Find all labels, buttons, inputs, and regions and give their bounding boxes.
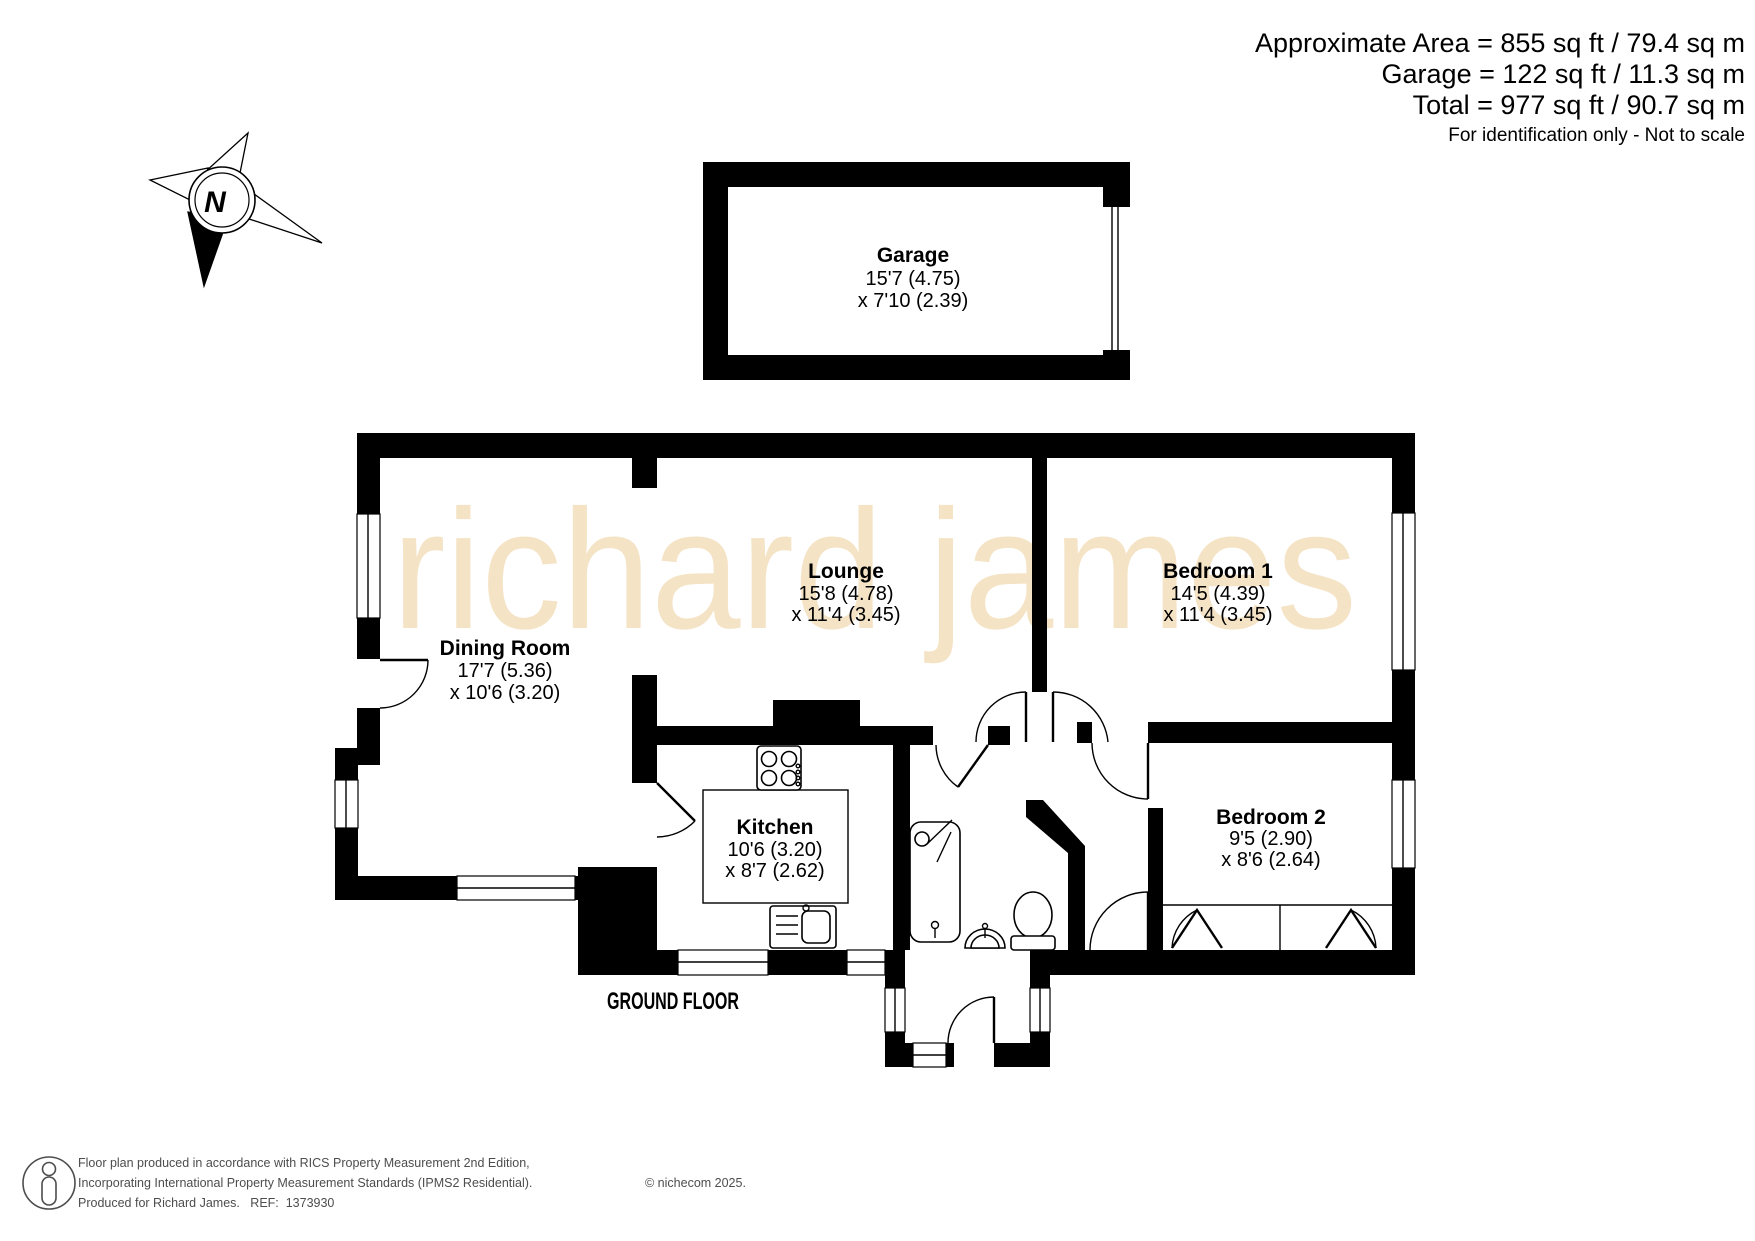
lounge-dim1: 15'8 (4.78) [799, 583, 894, 605]
garage-area-line: Garage = 122 sq ft / 11.3 sq m [1382, 59, 1745, 89]
footer-line2: Incorporating International Property Mea… [78, 1176, 532, 1190]
floorplan-drawing: richard james Approximate Area = 855 sq … [0, 0, 1755, 1241]
toilet-icon [1011, 892, 1055, 950]
footer-line3: Produced for Richard James. REF: 1373930 [78, 1196, 334, 1210]
bath-icon [910, 820, 960, 942]
kitchen-door [657, 783, 695, 821]
footer-copyright: © nichecom 2025. [645, 1176, 746, 1190]
bedroom2-wardrobes [1163, 905, 1392, 950]
footer-line1: Floor plan produced in accordance with R… [78, 1156, 530, 1170]
room-label-bedroom1: Bedroom 1 14'5 (4.39) x 11'4 (3.45) [1163, 560, 1273, 626]
kitchen-dim2: x 8'7 (2.62) [725, 860, 824, 882]
disclaimer-line: For identification only - Not to scale [1448, 125, 1745, 146]
bedroom2-dim2: x 8'6 (2.64) [1221, 849, 1320, 871]
room-label-kitchen: Kitchen 10'6 (3.20) x 8'7 (2.62) [725, 816, 824, 882]
garage-dim1: 15'7 (4.75) [866, 268, 961, 290]
wardrobe-bifold-left [1172, 910, 1222, 948]
lounge-name: Lounge [808, 560, 884, 583]
bathroom-fixtures [910, 820, 1055, 950]
bedroom1-dim1: 14'5 (4.39) [1171, 583, 1266, 605]
basin-icon [965, 924, 1005, 949]
floor-title: GROUND FLOOR [607, 988, 739, 1015]
area-summary: Approximate Area = 855 sq ft / 79.4 sq m… [1255, 28, 1745, 146]
footer: Floor plan produced in accordance with R… [23, 1156, 746, 1210]
bathroom-door [958, 745, 988, 787]
room-label-garage: Garage 15'7 (4.75) x 7'10 (2.39) [858, 244, 969, 312]
approximate-area-line: Approximate Area = 855 sq ft / 79.4 sq m [1255, 28, 1745, 58]
wardrobe-bifold-right [1326, 910, 1376, 948]
room-label-dining: Dining Room 17'7 (5.36) x 10'6 (3.20) [440, 637, 571, 704]
lounge-dim2: x 11'4 (3.45) [791, 604, 900, 626]
dining-name: Dining Room [440, 637, 571, 660]
kitchen-name: Kitchen [736, 816, 813, 839]
porch-structure [885, 950, 1050, 1067]
stove-icon [757, 746, 801, 790]
room-label-bedroom2: Bedroom 2 9'5 (2.90) x 8'6 (2.64) [1216, 806, 1326, 871]
garage-name: Garage [877, 244, 949, 267]
floorplan-page: richard james Approximate Area = 855 sq … [0, 0, 1755, 1241]
rics-person-icon [23, 1157, 75, 1209]
bedroom1-name: Bedroom 1 [1163, 560, 1273, 583]
kitchen-sink-icon [770, 905, 836, 948]
compass-icon: N [150, 133, 322, 286]
bedroom1-dim2: x 11'4 (3.45) [1163, 604, 1272, 626]
garage-dim2: x 7'10 (2.39) [858, 290, 969, 312]
kitchen-dim1: 10'6 (3.20) [728, 839, 823, 861]
total-area-line: Total = 977 sq ft / 90.7 sq m [1413, 90, 1745, 120]
bedroom2-dim1: 9'5 (2.90) [1229, 828, 1313, 850]
compass-north-label: N [204, 186, 227, 219]
dining-dim2: x 10'6 (3.20) [450, 682, 561, 704]
dining-dim1: 17'7 (5.36) [458, 660, 553, 682]
bedroom2-name: Bedroom 2 [1216, 806, 1326, 829]
